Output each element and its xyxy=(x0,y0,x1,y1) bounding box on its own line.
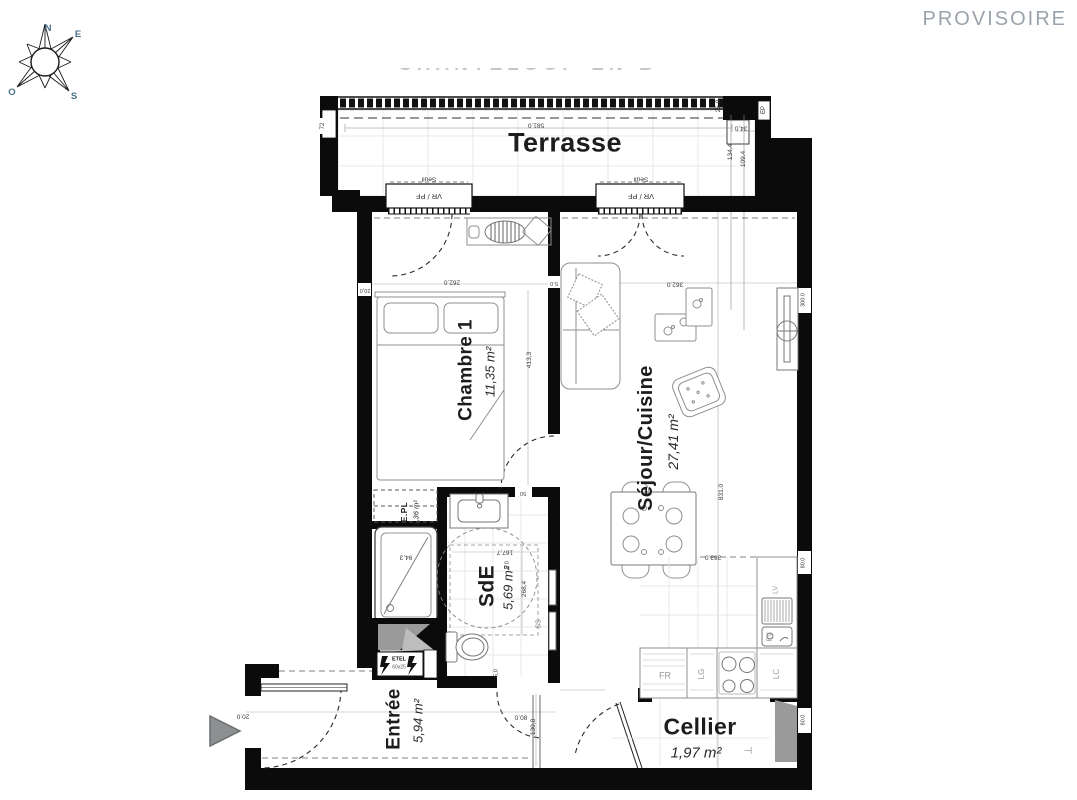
desk-and-chair xyxy=(467,216,552,246)
coffee-table xyxy=(655,288,712,341)
window-chambre xyxy=(386,184,472,214)
compass-east-label: E xyxy=(75,29,81,40)
shower xyxy=(375,527,437,623)
partition-lines xyxy=(533,695,540,768)
compass-north-label: N xyxy=(45,23,52,34)
sofa xyxy=(561,263,620,389)
pouf xyxy=(670,365,728,419)
vanity-sink xyxy=(450,494,508,528)
compass-south-label: S xyxy=(71,91,77,102)
terrace-railing xyxy=(338,97,755,109)
status-provisoire: PROVISOIRE xyxy=(923,8,1067,31)
project-watermark: CHANTELOUP-EN-B xyxy=(398,68,728,79)
door-leaves xyxy=(261,684,642,769)
closet-epl xyxy=(374,490,437,522)
toilet xyxy=(446,632,488,662)
compass-west-label: O xyxy=(8,87,15,98)
kitchen xyxy=(640,557,797,698)
bed xyxy=(375,292,505,480)
floorplan-page: N E S O CHANTELOUP-EN-B PROVISOIRE Terra… xyxy=(0,0,1077,800)
bathroom-sde xyxy=(437,494,556,676)
compass-rose: N E S O xyxy=(8,23,81,102)
entrance-arrow-icon xyxy=(210,716,240,746)
radiator xyxy=(777,288,798,370)
dining-set xyxy=(611,482,696,578)
shaft xyxy=(775,700,797,762)
cellar xyxy=(612,700,797,766)
floor-plan-drawing: N E S O xyxy=(0,0,1077,800)
electrical-panel-etel xyxy=(372,618,440,680)
window-sejour xyxy=(596,184,684,214)
